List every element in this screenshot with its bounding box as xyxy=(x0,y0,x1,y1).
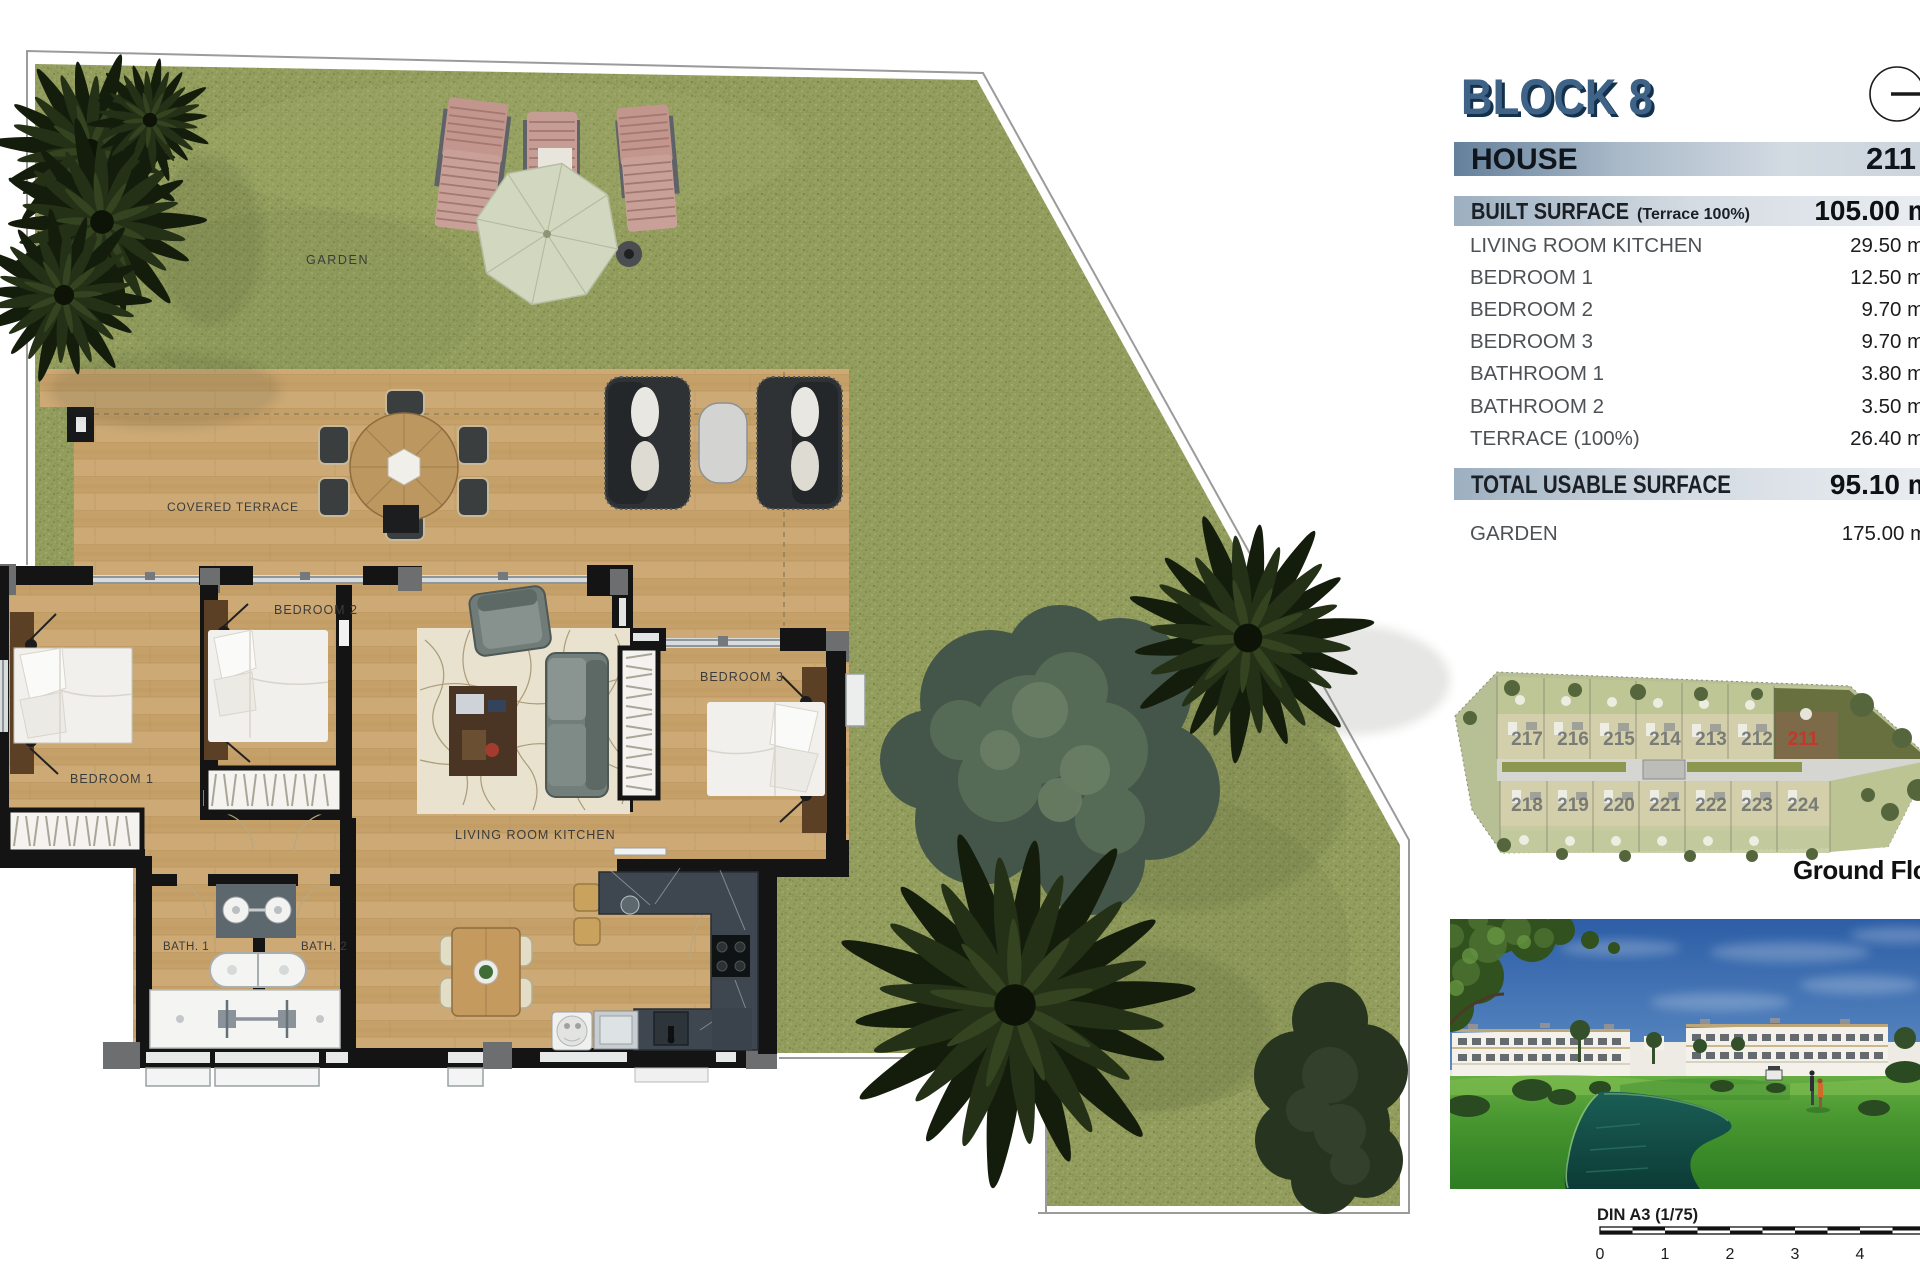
svg-text:3.80 m²: 3.80 m² xyxy=(1862,362,1920,385)
svg-text:175.00 m²: 175.00 m² xyxy=(1842,522,1920,545)
svg-text:218: 218 xyxy=(1511,795,1543,816)
svg-text:BATH. 2: BATH. 2 xyxy=(301,941,347,953)
svg-text:0: 0 xyxy=(1596,1246,1605,1263)
svg-text:216: 216 xyxy=(1557,729,1589,750)
svg-text:214: 214 xyxy=(1649,729,1681,750)
svg-text:BATH. 1: BATH. 1 xyxy=(163,941,209,953)
svg-text:LIVING ROOM KITCHEN: LIVING ROOM KITCHEN xyxy=(1470,234,1702,257)
svg-text:213: 213 xyxy=(1695,729,1727,750)
svg-text:29.50 m²: 29.50 m² xyxy=(1850,234,1920,257)
svg-text:HOUSE: HOUSE xyxy=(1471,143,1578,176)
svg-text:217: 217 xyxy=(1511,729,1543,750)
svg-text:224: 224 xyxy=(1787,795,1819,816)
svg-text:BEDROOM 3: BEDROOM 3 xyxy=(1470,330,1593,353)
svg-text:BEDROOM 1: BEDROOM 1 xyxy=(1470,266,1593,289)
svg-text:GARDEN: GARDEN xyxy=(306,253,369,267)
svg-text:220: 220 xyxy=(1603,795,1635,816)
svg-text:219: 219 xyxy=(1557,795,1589,816)
svg-text:COVERED TERRACE: COVERED TERRACE xyxy=(167,500,299,514)
svg-text:215: 215 xyxy=(1603,729,1635,750)
svg-text:4: 4 xyxy=(1856,1246,1865,1263)
svg-text:9.70 m²: 9.70 m² xyxy=(1862,298,1920,321)
svg-text:211: 211 xyxy=(1788,729,1819,750)
svg-text:3: 3 xyxy=(1791,1246,1800,1263)
svg-text:TOTAL USABLE SURFACE: TOTAL USABLE SURFACE xyxy=(1471,471,1731,499)
svg-text:2: 2 xyxy=(1726,1246,1735,1263)
svg-text:223: 223 xyxy=(1741,795,1773,816)
svg-text:BATHROOM 1: BATHROOM 1 xyxy=(1470,362,1604,385)
svg-text:BLOCK 8: BLOCK 8 xyxy=(1461,69,1653,125)
svg-text:26.40 m²: 26.40 m² xyxy=(1850,427,1920,450)
svg-text:Ground Floor: Ground Floor xyxy=(1793,855,1920,885)
svg-text:9.70 m²: 9.70 m² xyxy=(1862,330,1920,353)
svg-text:211: 211 xyxy=(1866,141,1916,176)
svg-text:GARDEN: GARDEN xyxy=(1470,522,1558,545)
svg-text:BEDROOM 1: BEDROOM 1 xyxy=(70,772,154,786)
svg-text:TERRACE (100%): TERRACE (100%) xyxy=(1470,427,1640,450)
svg-text:221: 221 xyxy=(1649,795,1681,816)
svg-text:(Terrace 100%): (Terrace 100%) xyxy=(1637,206,1750,223)
svg-text:95.10 m²: 95.10 m² xyxy=(1830,469,1920,500)
svg-text:12.50 m²: 12.50 m² xyxy=(1850,266,1920,289)
svg-text:BATHROOM 2: BATHROOM 2 xyxy=(1470,395,1604,418)
svg-text:BEDROOM 3: BEDROOM 3 xyxy=(700,670,784,684)
svg-text:3.50 m²: 3.50 m² xyxy=(1862,395,1920,418)
svg-text:212: 212 xyxy=(1741,729,1773,750)
svg-text:BEDROOM 2: BEDROOM 2 xyxy=(274,603,358,617)
svg-text:1: 1 xyxy=(1661,1246,1670,1263)
svg-text:LIVING ROOM KITCHEN: LIVING ROOM KITCHEN xyxy=(455,828,616,842)
svg-text:BUILT SURFACE: BUILT SURFACE xyxy=(1471,198,1629,224)
svg-text:DIN A3 (1/75): DIN A3 (1/75) xyxy=(1597,1206,1698,1224)
svg-text:BEDROOM 2: BEDROOM 2 xyxy=(1470,298,1593,321)
svg-text:222: 222 xyxy=(1695,795,1727,816)
svg-text:105.00 m²: 105.00 m² xyxy=(1814,195,1920,226)
